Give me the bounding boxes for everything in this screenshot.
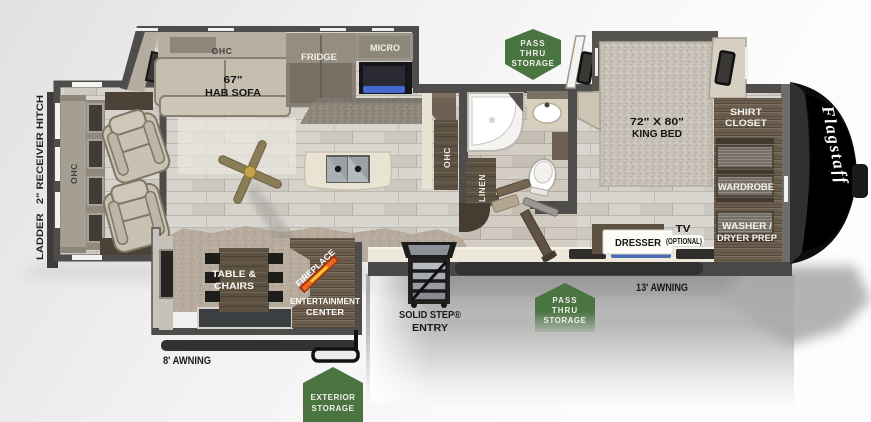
svg-text:ENTERTAINMENT: ENTERTAINMENT — [290, 296, 361, 306]
svg-text:THRU: THRU — [552, 306, 578, 315]
svg-text:ENTRY: ENTRY — [412, 322, 448, 334]
svg-text:THRU: THRU — [520, 49, 546, 58]
svg-text:CENTER: CENTER — [306, 307, 344, 317]
svg-text:STORAGE: STORAGE — [544, 316, 587, 325]
svg-text:13' AWNING: 13' AWNING — [636, 282, 688, 294]
svg-text:KING BED: KING BED — [632, 129, 682, 140]
svg-text:67": 67" — [224, 75, 243, 86]
svg-text:8' AWNING: 8' AWNING — [163, 355, 211, 367]
svg-text:CLOSET: CLOSET — [725, 118, 768, 128]
svg-text:TV: TV — [676, 224, 691, 235]
svg-text:HAB SOFA: HAB SOFA — [205, 88, 261, 99]
svg-text:MICRO: MICRO — [370, 43, 400, 53]
svg-text:72" X 80": 72" X 80" — [630, 117, 684, 128]
svg-text:DRYER PREP: DRYER PREP — [717, 233, 777, 243]
svg-text:SOLID STEP®: SOLID STEP® — [399, 309, 461, 321]
svg-text:SHIRT: SHIRT — [730, 107, 763, 117]
svg-text:STORAGE: STORAGE — [312, 404, 355, 413]
svg-text:OHC: OHC — [443, 147, 452, 168]
svg-text:LINEN: LINEN — [477, 174, 487, 202]
svg-text:OHC: OHC — [212, 47, 233, 56]
svg-text:TABLE &: TABLE & — [212, 269, 257, 279]
svg-text:(OPTIONAL): (OPTIONAL) — [666, 237, 702, 246]
svg-text:FRIDGE: FRIDGE — [301, 52, 337, 62]
svg-text:EXTERIOR: EXTERIOR — [311, 393, 356, 402]
svg-text:PASS: PASS — [520, 39, 545, 48]
svg-text:STORAGE: STORAGE — [512, 59, 555, 68]
svg-text:CHAIRS: CHAIRS — [214, 281, 254, 291]
svg-text:OHC: OHC — [70, 163, 79, 184]
svg-text:LADDER 2" RECEIVER HITCH: LADDER 2" RECEIVER HITCH — [35, 95, 45, 260]
svg-text:PASS: PASS — [552, 296, 577, 305]
svg-text:WASHER /: WASHER / — [722, 221, 773, 231]
svg-text:DRESSER: DRESSER — [615, 237, 661, 249]
svg-text:WARDROBE: WARDROBE — [718, 182, 774, 192]
